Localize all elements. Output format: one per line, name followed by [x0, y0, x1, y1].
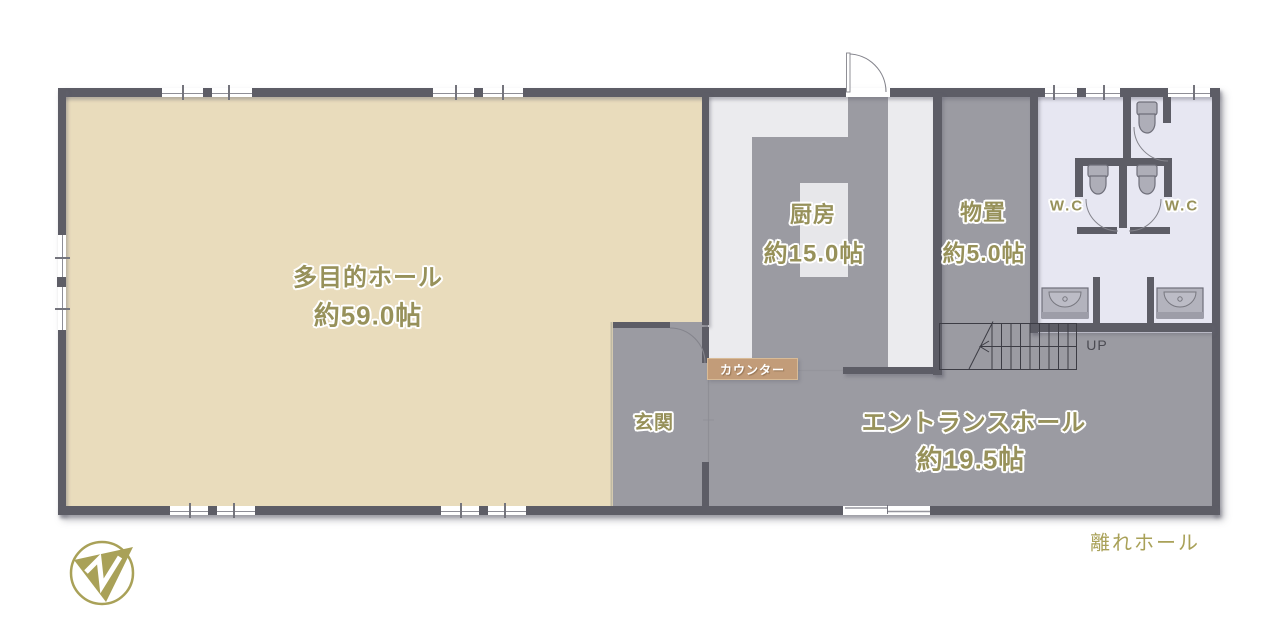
wc-stall-wall-top-right: [1163, 93, 1171, 123]
wc-stub-wall-right: [1130, 227, 1170, 234]
plan-caption: 離れホール: [1090, 527, 1200, 556]
company-logo: [71, 542, 133, 604]
wall-kitchen-bottom: [843, 367, 942, 374]
wall-kitchen-hall: [702, 93, 709, 325]
wall-genkan-stub: [702, 462, 709, 507]
room-label-kitchen-name: 厨房: [790, 197, 836, 229]
floorplan-page: カウンター 多目的ホール 約59.0帖 厨房 約15.0帖 物置 約5.0帖 W…: [0, 0, 1280, 623]
wall-storage-left: [933, 93, 942, 375]
window-icon: [441, 506, 526, 515]
door-swing-arc-icon: [847, 53, 887, 92]
room-label-hall-name: 多目的ホール: [293, 258, 443, 293]
window-icon: [170, 506, 255, 515]
stairs-up-label: UP: [1086, 337, 1107, 353]
kitchen-entry-strip: [848, 93, 888, 137]
window-icon: [58, 235, 66, 330]
counter-fixture: カウンター: [707, 358, 798, 380]
room-entrance-hall-floor-left: [708, 373, 938, 507]
room-label-entrance-hall-size: 約19.5帖: [917, 440, 1026, 477]
wc-stub-wall-left: [1077, 227, 1117, 234]
wall-genkan-top: [613, 322, 670, 328]
room-label-kitchen-size: 約15.0帖: [764, 234, 865, 269]
wall-wc-bottom: [1030, 323, 1212, 332]
room-label-storage-size: 約5.0帖: [943, 234, 1026, 268]
room-label-genkan: 玄関: [634, 408, 674, 435]
window-icon: [433, 88, 523, 97]
room-label-wc-left: W.C: [1050, 198, 1084, 215]
counter-label: カウンター: [720, 361, 785, 378]
wall-right: [1212, 88, 1220, 515]
kitchen-entry-door-gap: [846, 88, 890, 97]
window-icon: [1045, 88, 1120, 97]
room-label-hall-size: 約59.0帖: [314, 296, 423, 333]
window-icon: [162, 88, 252, 97]
wc-stall-wall-top-left: [1123, 93, 1131, 158]
room-label-storage-name: 物置: [960, 195, 1006, 227]
wc-sink-wall-right: [1147, 277, 1154, 323]
room-label-wc-right: W.C: [1165, 198, 1199, 215]
wall-storage-right: [1030, 93, 1038, 333]
wc-stall-wall-left: [1075, 158, 1083, 197]
wc-sink-wall-left: [1093, 277, 1100, 323]
wc-stall-wall-right: [1164, 158, 1172, 197]
main-entrance-door-gap: [843, 506, 930, 515]
room-label-entrance-hall-name: エントランスホール: [862, 403, 1087, 438]
window-icon: [1168, 88, 1210, 97]
wc-stall-wall-center: [1119, 158, 1127, 228]
